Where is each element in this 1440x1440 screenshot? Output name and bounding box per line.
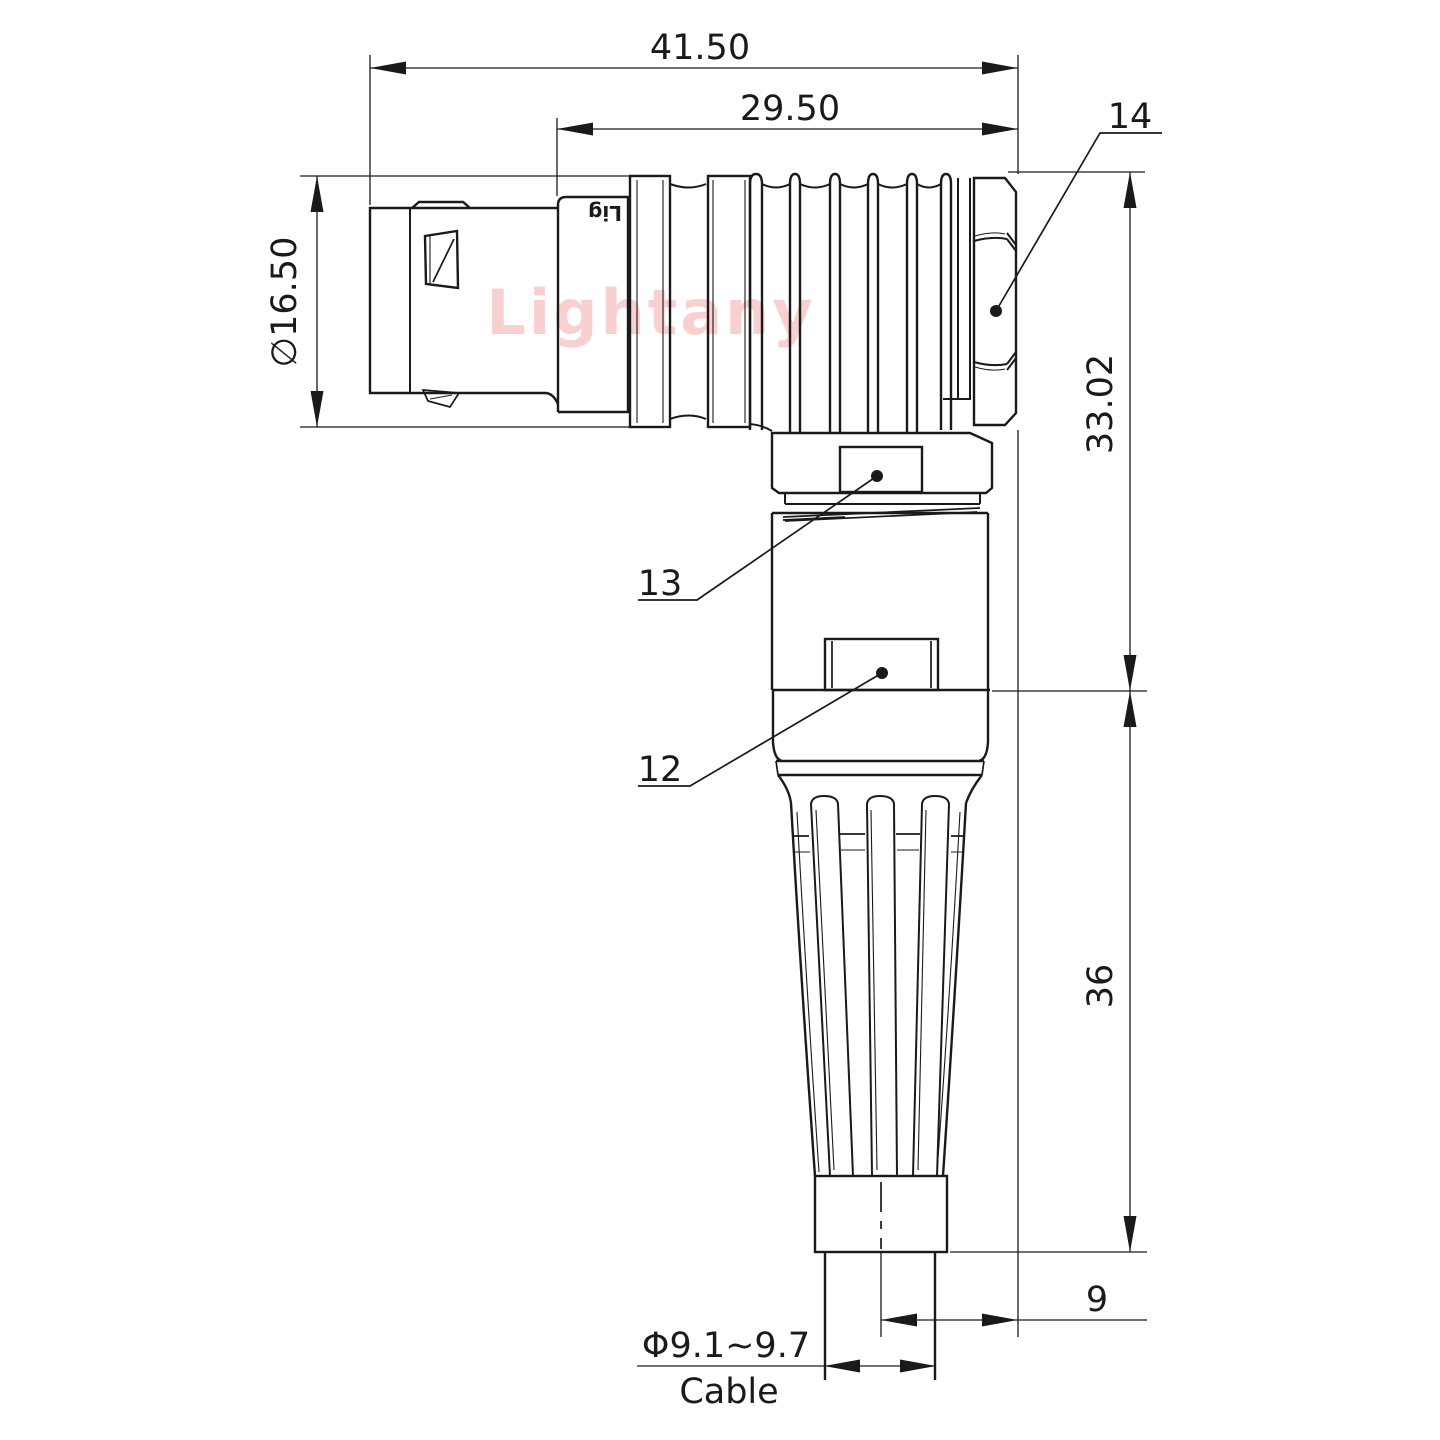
- nut-facet-lower: [974, 352, 1016, 370]
- nut-collar: [943, 178, 970, 400]
- dim-cable-diameter-label: Φ9.1~9.7: [642, 1326, 810, 1366]
- boot-shoulder-lines: [776, 761, 984, 775]
- arrowhead-left: [881, 1314, 917, 1327]
- strain-relief-boot: [773, 690, 988, 1176]
- callout-13-label: 13: [638, 564, 683, 604]
- rib: [830, 174, 840, 432]
- callout-12: 12: [638, 667, 888, 790]
- body-sides: [772, 513, 988, 690]
- leader-line: [996, 133, 1162, 311]
- boot-neck: [773, 690, 988, 761]
- arrowhead-right: [982, 62, 1018, 75]
- dim-rear-length: 29.50: [557, 89, 1018, 196]
- elbow-body: [772, 433, 992, 690]
- rib: [868, 174, 878, 432]
- leader-dot: [871, 470, 883, 482]
- cable-sides: [825, 1252, 935, 1380]
- arrowhead-left: [824, 1360, 860, 1373]
- arrowhead-left: [370, 62, 406, 75]
- elbow-ring: [785, 493, 980, 504]
- leader-dot: [990, 305, 1002, 317]
- arrowhead-bottom: [1124, 655, 1137, 691]
- callout-12-label: 12: [638, 750, 683, 790]
- cone-rib: [913, 796, 949, 1176]
- arrowhead-right: [982, 123, 1018, 136]
- boot-flare: [778, 775, 982, 803]
- rib: [907, 174, 917, 432]
- upper-latch: [840, 447, 922, 492]
- drawing-page: Lightany 41.50 29.50 ∅16.50 33.02: [0, 0, 1440, 1440]
- arrowhead-top: [1124, 691, 1137, 727]
- leader-dot: [876, 667, 888, 679]
- arrowhead-top: [311, 176, 324, 212]
- valley-bottom: [670, 416, 706, 420]
- dim-cable-offset-label: 9: [1086, 1280, 1108, 1320]
- dim-rear-length-label: 29.50: [740, 89, 840, 129]
- connector-technical-drawing: Lightany 41.50 29.50 ∅16.50 33.02: [0, 0, 1440, 1440]
- cable-exit: [815, 1176, 947, 1380]
- watermark-text: Lightany: [486, 276, 815, 349]
- dim-cable-diameter: Φ9.1~9.7 Cable: [637, 1326, 936, 1412]
- dim-lower-height-label: 36: [1081, 964, 1121, 1009]
- boot-shoulder-ends: [776, 761, 984, 775]
- sleeve-notch-line: [430, 395, 452, 399]
- dim-overall-length-label: 41.50: [650, 28, 750, 68]
- elbow-block: [772, 433, 992, 493]
- cable-label: Cable: [679, 1372, 778, 1412]
- arrowhead-bottom: [311, 391, 324, 427]
- nut-outline: [974, 178, 1016, 425]
- body-marking-text: Lig: [588, 201, 622, 225]
- lower-latch: [825, 639, 938, 690]
- nut-facet-upper: [974, 233, 1016, 251]
- arrowhead-right: [982, 1314, 1018, 1327]
- nut-facet-lower-inner: [975, 367, 1005, 370]
- valley-top: [670, 184, 706, 188]
- hex-nut: [943, 178, 1016, 425]
- callout-14-label: 14: [1108, 97, 1153, 137]
- arrowhead-top: [1124, 172, 1137, 208]
- callout-13: 13: [638, 470, 883, 604]
- nut-facet-upper-inner: [975, 233, 1005, 236]
- arrowhead-bottom: [1124, 1216, 1137, 1252]
- slot-webs-upper: [793, 834, 963, 836]
- arrowhead-left: [557, 123, 593, 136]
- dim-upper-height-label: 33.02: [1081, 354, 1121, 454]
- lower-latch-inner: [832, 641, 931, 688]
- sleeve-window-diagonal: [433, 239, 454, 282]
- arrowhead-right: [900, 1360, 936, 1373]
- thread-seam-lines: [783, 508, 980, 521]
- dim-overall-length: 41.50: [370, 28, 1018, 205]
- slot-webs-lower: [794, 850, 962, 852]
- rib: [941, 174, 951, 430]
- dim-shell-diameter-label: ∅16.50: [265, 237, 305, 368]
